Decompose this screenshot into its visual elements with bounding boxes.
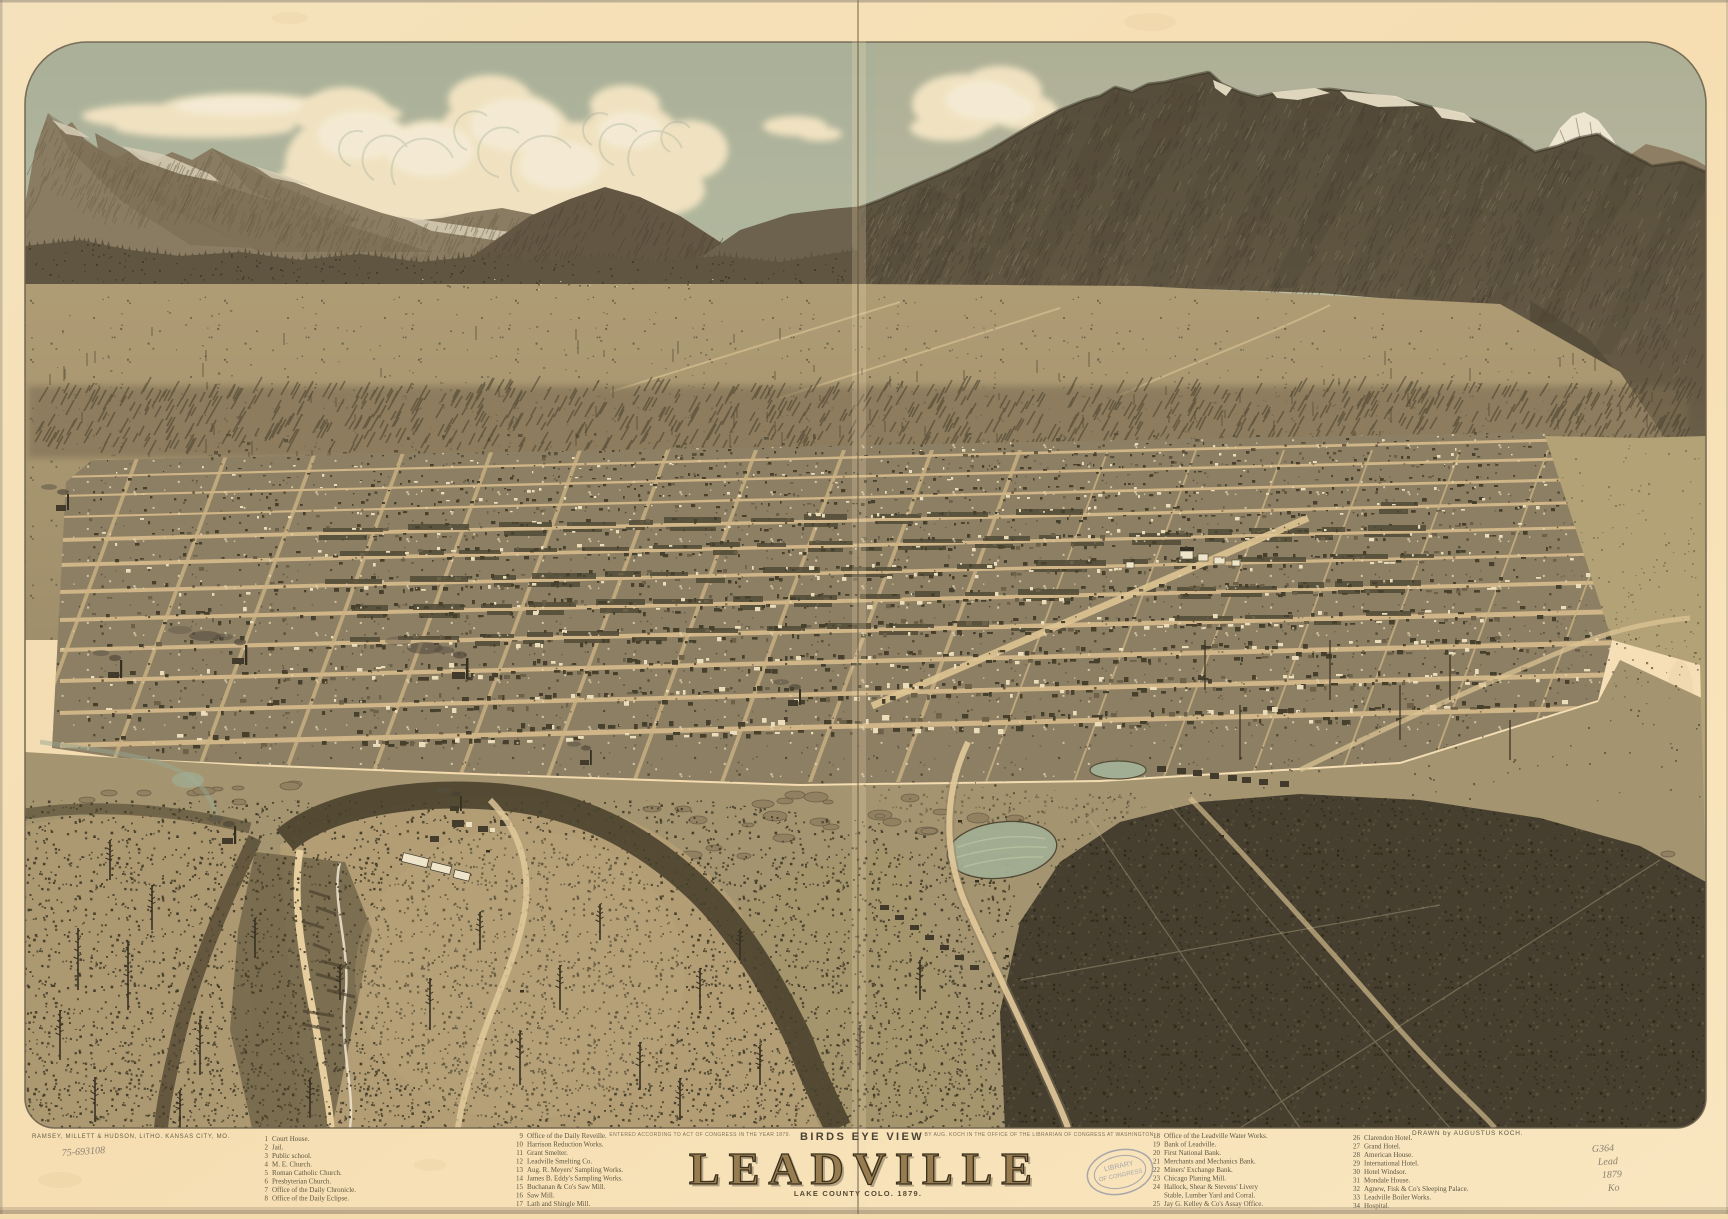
svg-text:32: 32 — [1353, 1185, 1361, 1193]
svg-text:26: 26 — [1353, 1134, 1361, 1142]
svg-text:19: 19 — [1153, 1141, 1161, 1149]
svg-text:Buchanan & Co's Saw Mill.: Buchanan & Co's Saw Mill. — [527, 1183, 606, 1191]
svg-text:27: 27 — [1353, 1143, 1361, 1151]
svg-text:7: 7 — [265, 1186, 269, 1194]
svg-text:Agnew, Fisk & Co's Sleeping Pa: Agnew, Fisk & Co's Sleeping Palace. — [1364, 1185, 1469, 1193]
svg-text:Lath and Shingle Mill.: Lath and Shingle Mill. — [527, 1200, 591, 1208]
svg-text:Aug. R. Meyers' Sampling Works: Aug. R. Meyers' Sampling Works. — [527, 1166, 623, 1174]
svg-text:33: 33 — [1353, 1194, 1361, 1202]
svg-text:Ko: Ko — [1607, 1182, 1620, 1194]
svg-text:Saw Mill.: Saw Mill. — [527, 1192, 555, 1200]
svg-text:15: 15 — [516, 1183, 524, 1191]
svg-text:24: 24 — [1153, 1183, 1161, 1191]
svg-text:5: 5 — [265, 1169, 269, 1177]
svg-text:13: 13 — [516, 1166, 524, 1174]
svg-text:10: 10 — [516, 1141, 524, 1149]
svg-text:American House.: American House. — [1364, 1151, 1413, 1159]
svg-text:Hallock, Shear & Stevens' Live: Hallock, Shear & Stevens' Livery — [1164, 1183, 1258, 1191]
svg-text:20: 20 — [1153, 1149, 1161, 1157]
svg-text:1879: 1879 — [1602, 1169, 1623, 1181]
svg-text:ENTERED ACCORDING TO ACT O: ENTERED ACCORDING TO ACT OF CONGRESS IN … — [609, 1132, 790, 1138]
svg-text:9: 9 — [520, 1132, 524, 1140]
svg-text:11: 11 — [516, 1149, 523, 1157]
svg-text:Clarendon Hotel.: Clarendon Hotel. — [1364, 1134, 1412, 1142]
svg-text:8: 8 — [265, 1195, 269, 1203]
svg-text:Hotel Windsor.: Hotel Windsor. — [1364, 1168, 1407, 1176]
svg-text:Office of the Daily Chronicle.: Office of the Daily Chronicle. — [272, 1186, 356, 1194]
svg-text:Presbyterian Church.: Presbyterian Church. — [272, 1178, 331, 1186]
svg-text:Grand Hotel.: Grand Hotel. — [1364, 1143, 1401, 1151]
svg-text:28: 28 — [1353, 1151, 1361, 1159]
svg-text:2: 2 — [265, 1144, 269, 1152]
svg-text:Court House.: Court House. — [272, 1135, 310, 1143]
svg-text:12: 12 — [516, 1158, 524, 1166]
svg-text:Miners' Exchange Bank.: Miners' Exchange Bank. — [1164, 1166, 1233, 1174]
svg-text:LEADVILLE: LEADVILLE — [689, 1143, 1041, 1194]
svg-text:Bank of Leadville.: Bank of Leadville. — [1164, 1141, 1217, 1149]
svg-text:14: 14 — [516, 1175, 524, 1183]
svg-text:30: 30 — [1353, 1168, 1361, 1176]
svg-text:Public school.: Public school. — [272, 1152, 312, 1160]
svg-text:Merchants and Mechanics Bank.: Merchants and Mechanics Bank. — [1164, 1158, 1256, 1166]
svg-text:25: 25 — [1153, 1200, 1161, 1208]
svg-text:International Hotel.: International Hotel. — [1364, 1160, 1419, 1168]
svg-text:23: 23 — [1153, 1175, 1161, 1183]
svg-text:Office of the Daily Eclipse.: Office of the Daily Eclipse. — [272, 1195, 349, 1203]
svg-text:Mondale House.: Mondale House. — [1364, 1177, 1411, 1185]
svg-text:1: 1 — [265, 1135, 269, 1143]
svg-text:BY AUG. KOCH IN THE OFFIC: BY AUG. KOCH IN THE OFFICE OF THE LIBRAR… — [925, 1132, 1156, 1138]
svg-text:G364: G364 — [1592, 1143, 1615, 1155]
svg-text:6: 6 — [265, 1178, 269, 1186]
svg-text:Roman Catholic Church.: Roman Catholic Church. — [272, 1169, 342, 1177]
svg-text:17: 17 — [516, 1200, 524, 1208]
svg-text:Office of the Daily Reveille.: Office of the Daily Reveille. — [527, 1132, 607, 1140]
svg-text:29: 29 — [1353, 1160, 1361, 1168]
svg-text:Jail.: Jail. — [272, 1144, 284, 1152]
svg-text:First National Bank.: First National Bank. — [1164, 1149, 1221, 1157]
svg-text:LAKE COUNTY COLO. 1879.: LAKE COUNTY COLO. 1879. — [794, 1189, 922, 1198]
svg-text:31: 31 — [1353, 1177, 1361, 1185]
svg-text:BIRDS EYE VIEW: BIRDS EYE VIEW — [800, 1131, 924, 1143]
svg-text:21: 21 — [1153, 1158, 1161, 1166]
svg-text:Chicago Planing Mill.: Chicago Planing Mill. — [1164, 1175, 1226, 1183]
svg-text:Office of the Leadville Water: Office of the Leadville Water Works. — [1164, 1132, 1268, 1140]
svg-text:Lead: Lead — [1597, 1156, 1620, 1168]
svg-text:16: 16 — [516, 1192, 524, 1200]
svg-text:Leadville Smelting Co.: Leadville Smelting Co. — [527, 1158, 592, 1166]
svg-text:Grant Smelter.: Grant Smelter. — [527, 1149, 568, 1157]
svg-text:22: 22 — [1153, 1166, 1161, 1174]
svg-text:RAMSEY, MILLETT & HUDSON, LITH: RAMSEY, MILLETT & HUDSON, LITHO. KANSAS … — [32, 1134, 230, 1140]
svg-text:James B. Eddy's Sampling Works: James B. Eddy's Sampling Works. — [527, 1175, 623, 1183]
svg-text:M. E. Church.: M. E. Church. — [272, 1161, 312, 1169]
svg-text:Leadville Boiler Works.: Leadville Boiler Works. — [1364, 1194, 1431, 1202]
svg-text:Harrison Reduction Works.: Harrison Reduction Works. — [527, 1141, 604, 1149]
svg-text:Jay G. Kelley & Co's Assay Off: Jay G. Kelley & Co's Assay Office. — [1164, 1200, 1263, 1208]
svg-text:DRAWN by AUGUSTUS KOCH.: DRAWN by AUGUSTUS KOCH. — [1412, 1130, 1523, 1137]
svg-text:4: 4 — [265, 1161, 269, 1169]
svg-text:3: 3 — [265, 1152, 269, 1160]
svg-text:Stable, Lumber Yard and Corral: Stable, Lumber Yard and Corral. — [1164, 1192, 1255, 1200]
